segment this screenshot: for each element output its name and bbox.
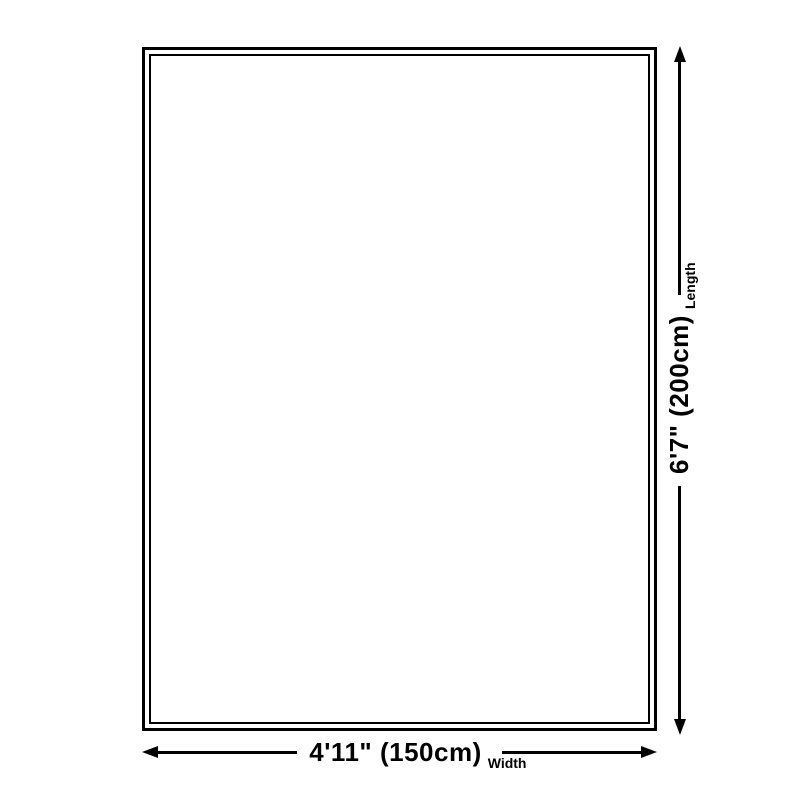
width-arrow-line-right [502,751,641,754]
length-dimension-text: 6'7" (200cm) Length [664,315,695,474]
width-dimension-text: 4'11" (150cm) Width [309,737,481,768]
arrowhead-right-icon [641,746,657,758]
arrowhead-down-icon [674,719,686,735]
length-label: Length [682,262,698,309]
length-arrow-line-top [678,62,681,295]
arrowhead-up-icon [674,46,686,62]
rug-inner-border [149,54,650,724]
length-value: 6'7" (200cm) [664,315,694,474]
arrowhead-left-icon [142,746,158,758]
width-arrow-line-left [158,751,297,754]
length-dimension-arrow: 6'7" (200cm) Length [650,46,709,735]
length-arrow-line-bottom [678,486,681,719]
width-label: Width [488,755,527,771]
dimension-diagram: 4'11" (150cm) Width 6'7" (200cm) Length [0,0,800,800]
width-value: 4'11" (150cm) [309,737,481,767]
rug-outline [142,47,657,731]
width-dimension-arrow: 4'11" (150cm) Width [142,723,657,781]
